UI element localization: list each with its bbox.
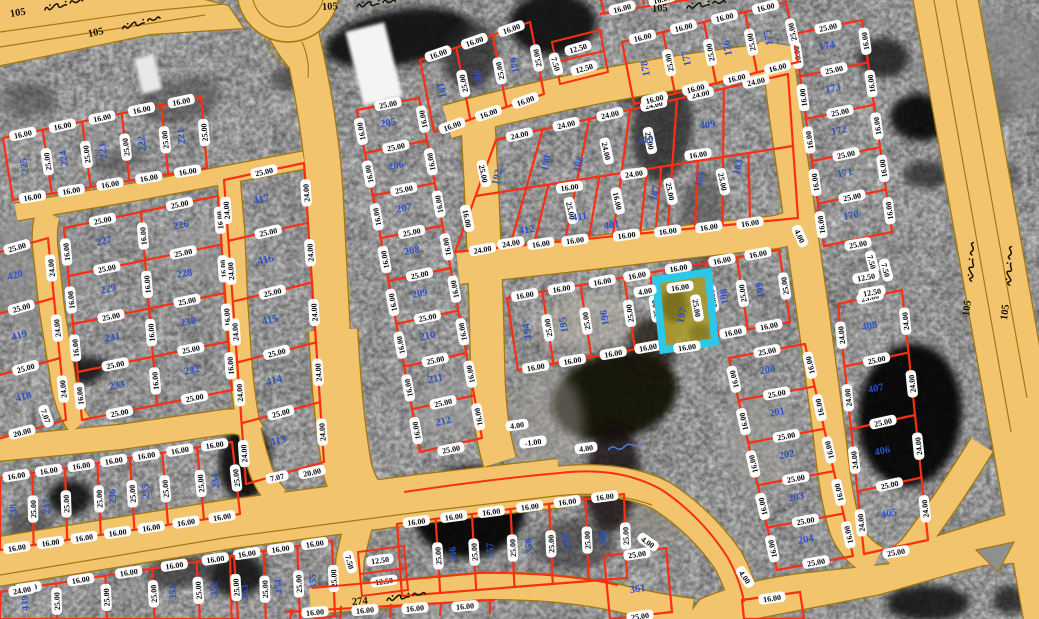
svg-text:25.00: 25.00 (294, 575, 304, 593)
svg-text:105: 105 (961, 300, 974, 317)
svg-text:25.00: 25.00 (102, 588, 112, 606)
svg-text:25.00: 25.00 (62, 495, 72, 513)
svg-text:223: 223 (97, 143, 110, 160)
svg-text:24.00: 24.00 (230, 323, 240, 342)
svg-text:235: 235 (140, 484, 152, 500)
svg-text:25.00: 25.00 (433, 547, 443, 566)
svg-text:24.00: 24.00 (843, 388, 854, 407)
svg-text:198: 198 (718, 288, 731, 305)
svg-text:25.00: 25.00 (52, 592, 61, 610)
svg-text:412: 412 (518, 224, 535, 237)
svg-text:409: 409 (699, 119, 716, 132)
svg-text:24.00: 24.00 (913, 437, 924, 456)
svg-text:24.00: 24.00 (907, 374, 918, 393)
svg-text:401: 401 (603, 219, 620, 232)
svg-text:25.00: 25.00 (261, 580, 271, 598)
svg-text:24.00: 24.00 (222, 201, 232, 220)
svg-text:4.00: 4.00 (510, 420, 525, 431)
svg-text:25.00: 25.00 (583, 531, 593, 549)
svg-text:24.00: 24.00 (302, 184, 312, 203)
svg-text:16.00: 16.00 (66, 291, 77, 310)
svg-text:25.00: 25.00 (149, 585, 159, 603)
svg-text:360: 360 (598, 530, 610, 545)
svg-text:224: 224 (58, 149, 71, 167)
svg-text:361: 361 (629, 583, 646, 596)
svg-text:16.00: 16.00 (226, 356, 236, 375)
svg-text:16.00: 16.00 (70, 339, 81, 358)
svg-text:411: 411 (571, 211, 588, 224)
svg-text:238: 238 (8, 504, 19, 519)
svg-text:225: 225 (19, 157, 32, 174)
svg-text:359: 359 (561, 534, 573, 549)
svg-text:24.00: 24.00 (235, 383, 245, 402)
svg-text:25.00: 25.00 (232, 578, 242, 597)
svg-text:25.00: 25.00 (470, 543, 480, 561)
svg-text:25.00: 25.00 (161, 479, 171, 498)
svg-text:24.00: 24.00 (58, 380, 69, 399)
svg-text:25.00: 25.00 (29, 500, 38, 518)
svg-text:357: 357 (485, 542, 497, 558)
svg-text:24.00: 24.00 (920, 499, 931, 518)
svg-text:25.00: 25.00 (95, 490, 105, 508)
svg-text:16.00: 16.00 (142, 275, 152, 294)
svg-text:16.00: 16.00 (146, 323, 156, 342)
svg-text:25.00: 25.00 (196, 474, 207, 493)
svg-text:25.00: 25.00 (160, 130, 171, 149)
svg-text:16.00: 16.00 (150, 372, 160, 391)
svg-text:24.00: 24.00 (239, 444, 249, 463)
svg-text:4.00: 4.00 (579, 443, 594, 454)
svg-text:410: 410 (637, 134, 654, 147)
svg-text:24.00: 24.00 (836, 326, 847, 345)
svg-text:236: 236 (107, 489, 119, 505)
svg-text:199: 199 (754, 281, 767, 298)
svg-text:16.00: 16.00 (138, 227, 148, 246)
svg-text:105: 105 (999, 304, 1012, 321)
svg-text:354: 354 (273, 579, 284, 594)
svg-text:356: 356 (448, 546, 460, 562)
svg-text:24.00: 24.00 (318, 423, 328, 442)
svg-text:196: 196 (599, 309, 612, 326)
svg-text:195: 195 (558, 316, 571, 333)
svg-text:439: 439 (20, 596, 31, 611)
svg-text:16.00: 16.00 (75, 387, 86, 406)
svg-text:16.00: 16.00 (61, 243, 72, 262)
svg-text:24.00: 24.00 (226, 262, 236, 281)
svg-text:221: 221 (176, 128, 188, 145)
svg-text:24.00: 24.00 (849, 451, 860, 470)
svg-text:105: 105 (322, 1, 338, 13)
svg-text:105: 105 (652, 3, 668, 15)
svg-text:358: 358 (523, 538, 535, 554)
svg-text:24.00: 24.00 (46, 259, 57, 278)
svg-text:234: 234 (210, 473, 222, 489)
svg-text:16.00: 16.00 (456, 601, 475, 612)
svg-text:25.00: 25.00 (547, 535, 557, 553)
svg-text:25.00: 25.00 (621, 527, 631, 545)
svg-text:24.00: 24.00 (310, 303, 320, 322)
svg-text:16.00: 16.00 (306, 607, 325, 618)
svg-text:351: 351 (167, 584, 179, 600)
svg-text:24.00: 24.00 (900, 312, 911, 331)
svg-text:352: 352 (209, 581, 221, 597)
svg-text:237: 237 (41, 499, 52, 514)
svg-text:24.00: 24.00 (314, 363, 324, 382)
svg-text:25.00: 25.00 (199, 123, 209, 142)
svg-text:24.00: 24.00 (856, 513, 867, 532)
svg-text:16.00: 16.00 (406, 603, 425, 614)
svg-text:24.00: 24.00 (306, 243, 316, 262)
svg-text:25.00: 25.00 (508, 539, 518, 557)
svg-text:25.00: 25.00 (194, 581, 204, 600)
svg-text:25.00: 25.00 (128, 484, 138, 503)
svg-text:25.00: 25.00 (631, 611, 650, 619)
svg-text:24.00: 24.00 (52, 319, 63, 338)
svg-text:222: 222 (136, 135, 149, 152)
svg-text:274: 274 (352, 596, 369, 608)
